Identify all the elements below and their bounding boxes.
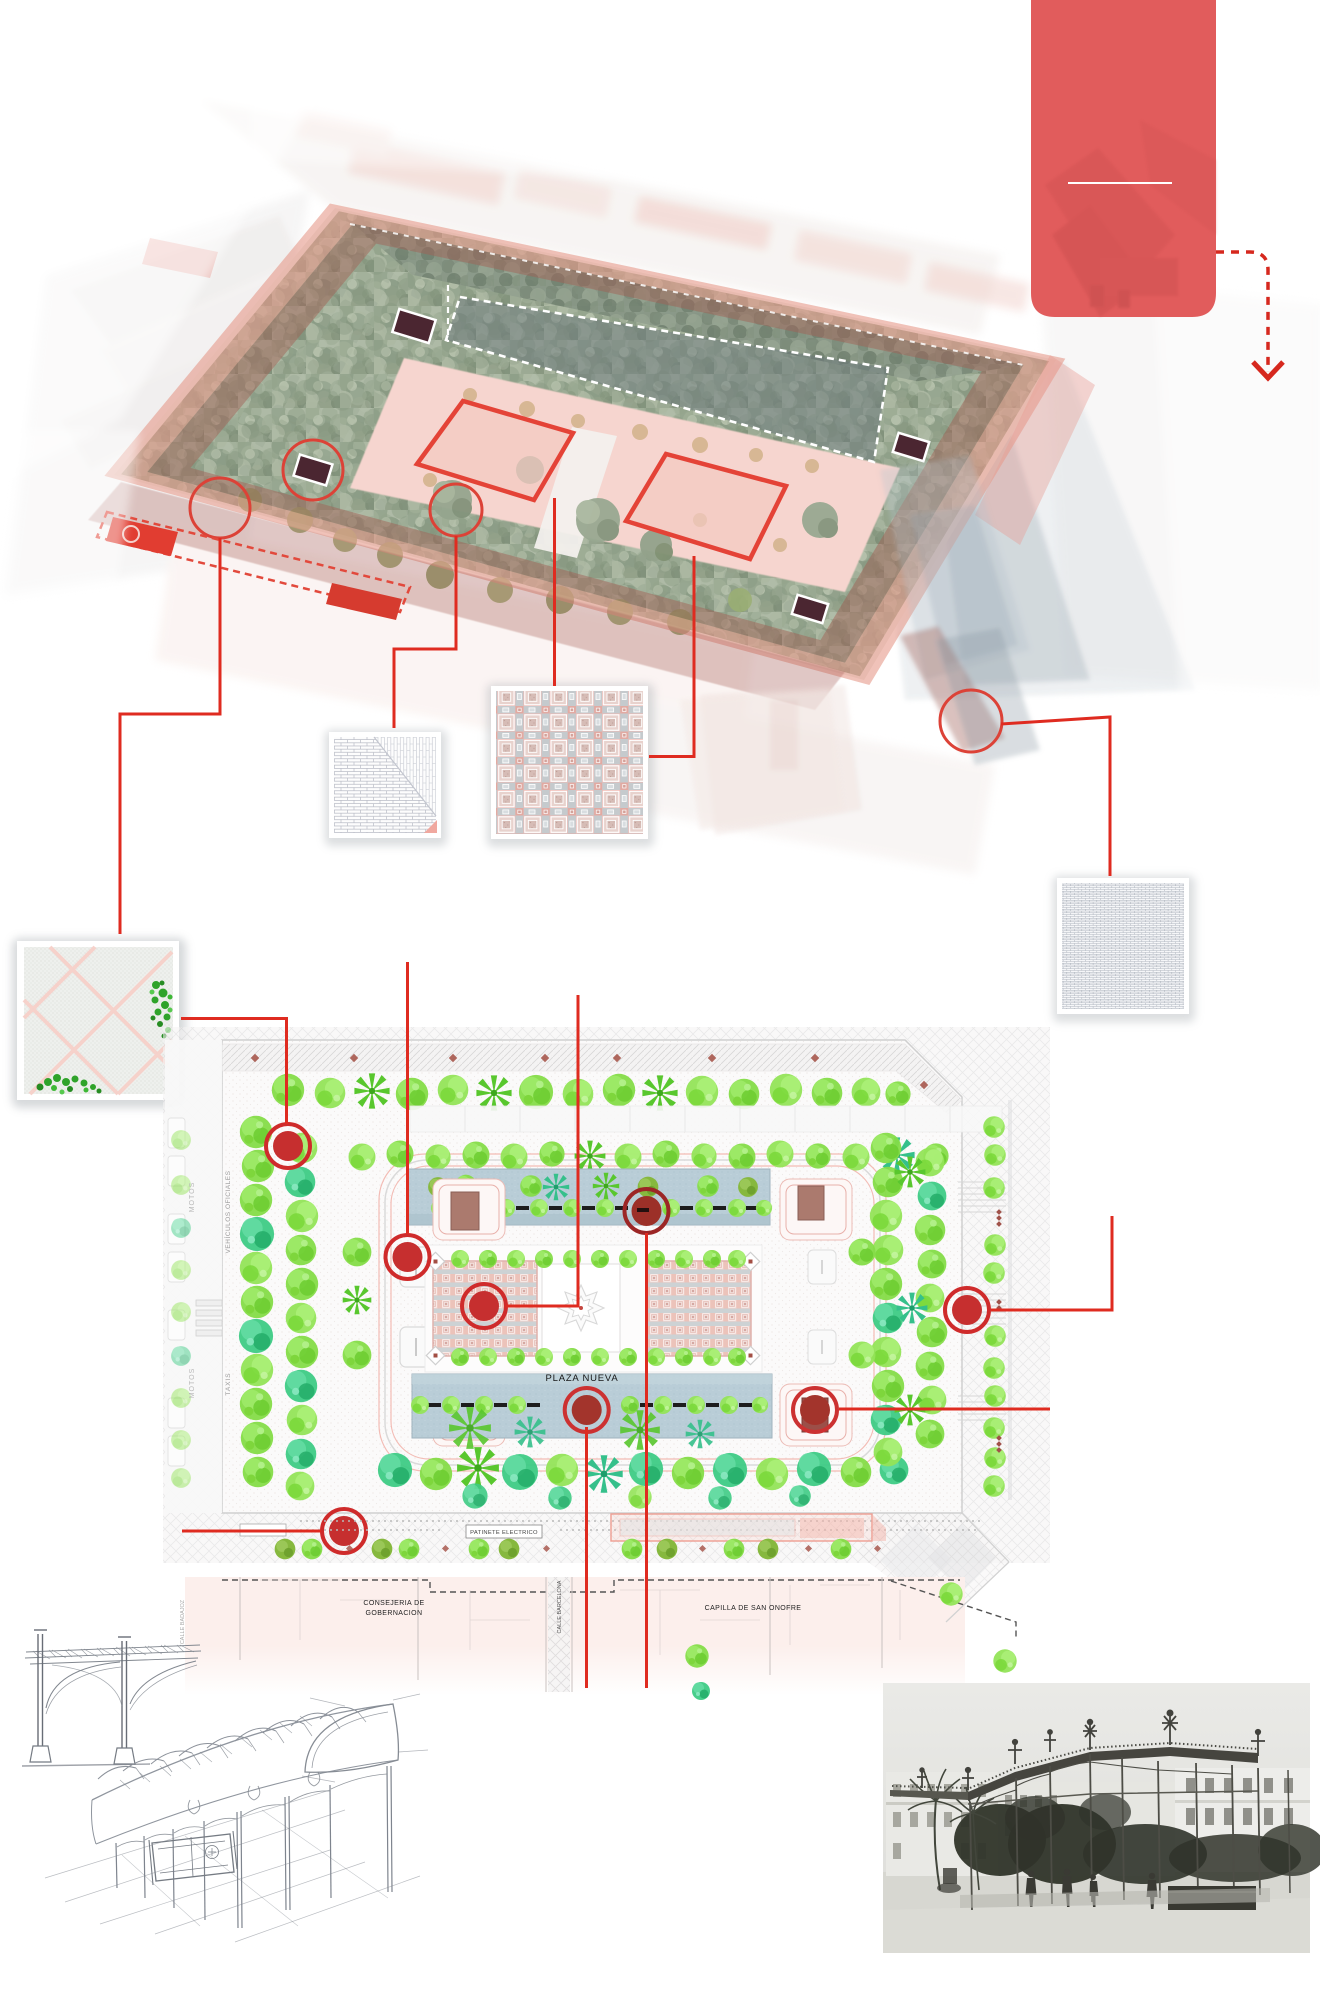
svg-text:CONSEJERIA DE: CONSEJERIA DE <box>363 1600 424 1607</box>
svg-text:CAPILLA DE SAN ONOFRE: CAPILLA DE SAN ONOFRE <box>705 1605 802 1612</box>
svg-text:PATINETE ELECTRICO: PATINETE ELECTRICO <box>470 1530 538 1536</box>
svg-text:GOBERNACION: GOBERNACION <box>366 1610 423 1617</box>
svg-text:CALLE BADAJOZ: CALLE BADAJOZ <box>180 1599 186 1644</box>
svg-text:MOTOS: MOTOS <box>189 1182 196 1213</box>
svg-text:CALLE BARCELONA: CALLE BARCELONA <box>557 1580 563 1633</box>
svg-text:VEHÍCULOS OFICIALES: VEHÍCULOS OFICIALES <box>223 1170 232 1253</box>
svg-text:MOTOS: MOTOS <box>189 1368 196 1399</box>
svg-text:PLAZA NUEVA: PLAZA NUEVA <box>545 1373 618 1384</box>
svg-text:TAXIS: TAXIS <box>225 1372 232 1395</box>
